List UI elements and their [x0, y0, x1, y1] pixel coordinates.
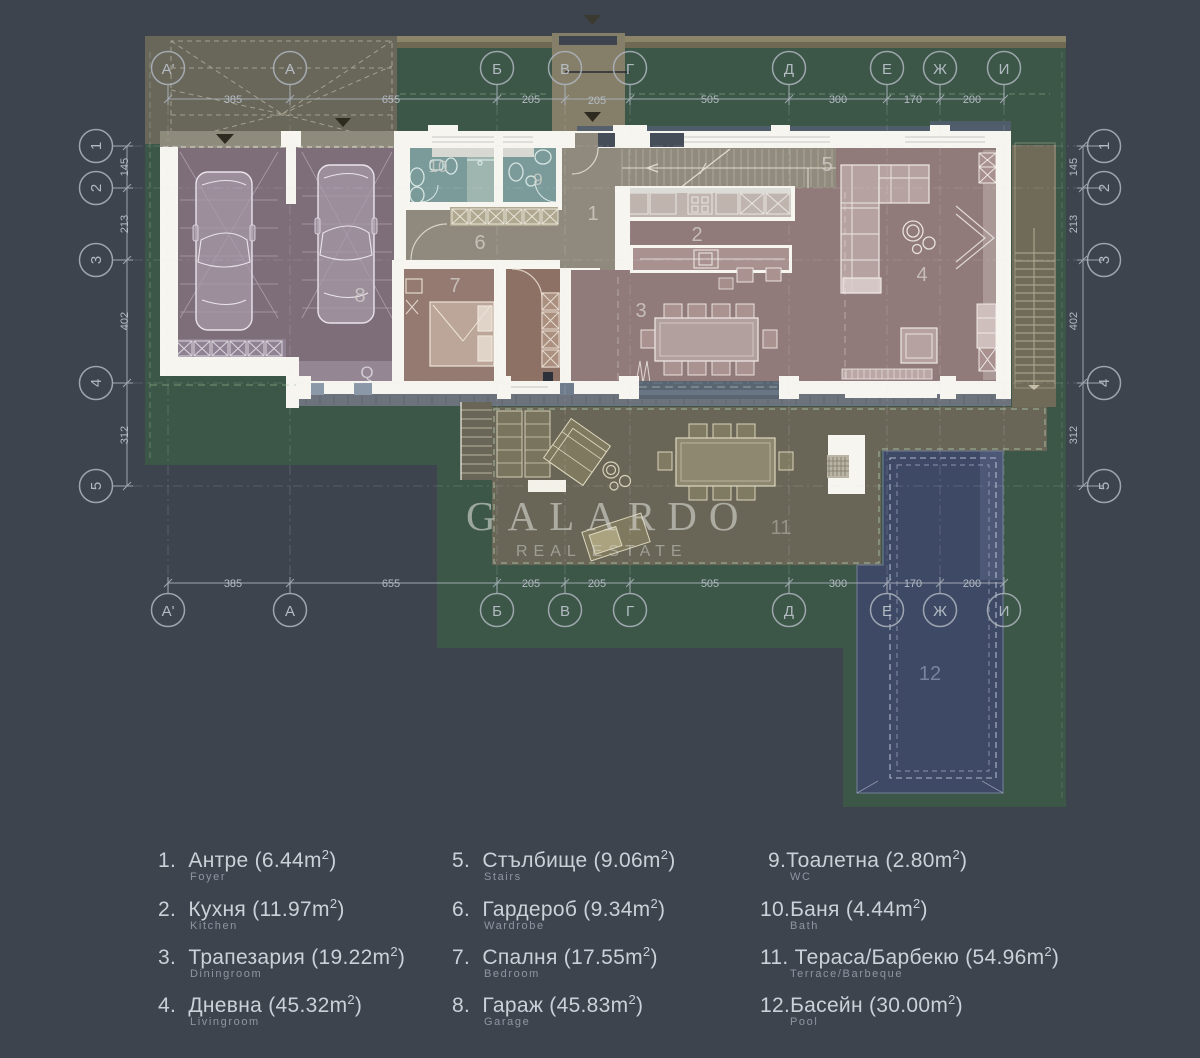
svg-text:3: 3 — [1096, 256, 1113, 264]
svg-text:385: 385 — [224, 94, 242, 106]
svg-text:170: 170 — [904, 94, 922, 106]
svg-text:12: 12 — [919, 663, 941, 685]
svg-text:205: 205 — [588, 95, 606, 107]
svg-text:4: 4 — [88, 379, 105, 387]
svg-text:402: 402 — [1068, 312, 1080, 330]
svg-text:В: В — [560, 61, 570, 78]
svg-text:10: 10 — [429, 157, 448, 176]
svg-text:312: 312 — [119, 426, 131, 444]
svg-text:205: 205 — [522, 94, 540, 106]
svg-text:312: 312 — [1068, 426, 1080, 444]
svg-text:2: 2 — [691, 224, 702, 246]
svg-text:А': А' — [162, 61, 175, 78]
svg-text:505: 505 — [701, 578, 719, 590]
svg-text:5: 5 — [821, 154, 832, 176]
svg-text:11: 11 — [771, 517, 792, 539]
svg-text:9: 9 — [533, 170, 542, 189]
svg-text:385: 385 — [224, 578, 242, 590]
svg-text:Ж: Ж — [933, 61, 947, 78]
svg-text:402: 402 — [119, 312, 131, 330]
svg-text:Q: Q — [360, 363, 373, 382]
svg-text:213: 213 — [1068, 215, 1080, 233]
svg-text:8: 8 — [354, 285, 365, 307]
svg-text:205: 205 — [522, 578, 540, 590]
svg-text:213: 213 — [119, 215, 131, 233]
svg-text:145: 145 — [119, 158, 131, 176]
svg-text:А: А — [285, 61, 295, 78]
svg-text:Е: Е — [882, 61, 892, 78]
svg-text:145: 145 — [1068, 158, 1080, 176]
svg-text:Д: Д — [784, 61, 794, 78]
svg-text:1: 1 — [1096, 142, 1113, 150]
svg-text:205: 205 — [588, 578, 606, 590]
svg-text:2: 2 — [88, 184, 105, 192]
svg-text:3: 3 — [88, 256, 105, 264]
svg-text:300: 300 — [829, 94, 847, 106]
svg-text:655: 655 — [382, 94, 400, 106]
svg-text:505: 505 — [701, 94, 719, 106]
svg-text:1: 1 — [587, 203, 598, 225]
svg-text:Е: Е — [882, 603, 892, 620]
svg-text:А': А' — [162, 603, 175, 620]
svg-text:5: 5 — [1096, 482, 1113, 490]
svg-text:3: 3 — [635, 300, 646, 322]
svg-text:7: 7 — [449, 275, 460, 297]
svg-text:Б: Б — [492, 603, 502, 620]
svg-text:5: 5 — [88, 482, 105, 490]
svg-text:200: 200 — [963, 94, 981, 106]
svg-text:655: 655 — [382, 578, 400, 590]
svg-text:Б: Б — [492, 61, 502, 78]
svg-text:Г: Г — [626, 61, 634, 78]
svg-text:2: 2 — [1096, 184, 1113, 192]
svg-text:4: 4 — [1096, 379, 1113, 387]
svg-text:И: И — [999, 61, 1010, 78]
svg-text:6: 6 — [474, 232, 485, 254]
svg-text:Д: Д — [784, 603, 794, 620]
svg-text:1: 1 — [88, 142, 105, 150]
svg-text:200: 200 — [963, 578, 981, 590]
svg-text:4: 4 — [916, 264, 927, 286]
svg-text:А: А — [285, 603, 295, 620]
svg-text:170: 170 — [904, 578, 922, 590]
svg-text:300: 300 — [829, 578, 847, 590]
svg-text:В: В — [560, 603, 570, 620]
svg-text:И: И — [999, 603, 1010, 620]
svg-text:Г: Г — [626, 603, 634, 620]
svg-text:Ж: Ж — [933, 603, 947, 620]
